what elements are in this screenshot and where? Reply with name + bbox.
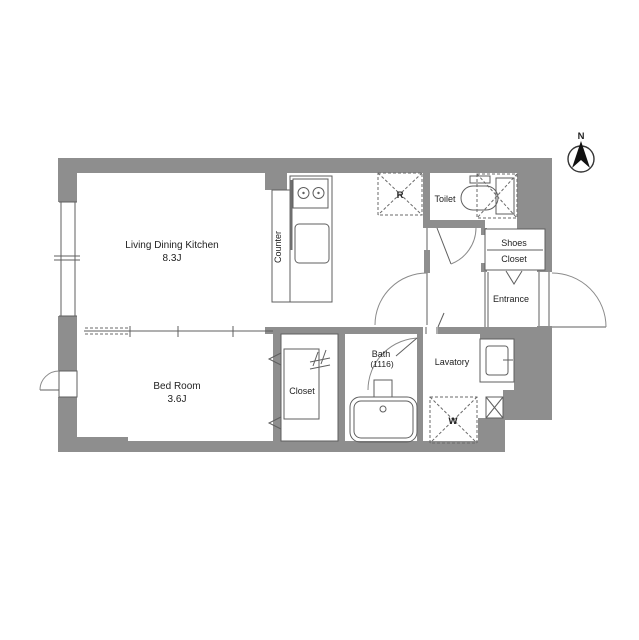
floor-plan-page: N Living Dining Kitchen 8.3J Bed Room 3.… (0, 0, 639, 640)
shoes-closet-label-1: Shoes (501, 238, 527, 248)
shoes-closet-label-2: Closet (501, 254, 527, 264)
bedroom-sliding-partition (84, 326, 273, 337)
lavatory-label: Lavatory (435, 357, 470, 367)
vanity-sink (480, 339, 514, 382)
ldk-size-label: 8.3J (163, 253, 182, 264)
counter-label: Counter (273, 231, 283, 263)
bedroom-size-label: 3.6J (168, 394, 187, 405)
refrigerator-label: R (397, 190, 404, 201)
washer-label: W (449, 416, 458, 427)
bath-label: Bath (372, 349, 391, 359)
bedroom-label: Bed Room (153, 381, 200, 392)
pipe-space (486, 397, 503, 418)
toilet-door (437, 228, 476, 264)
ldk-label: Living Dining Kitchen (125, 240, 218, 251)
stove (293, 179, 328, 208)
kitchen-hall-door (375, 273, 427, 325)
bath-size-label: (1116) (370, 359, 393, 369)
toilet-fixture (461, 174, 517, 218)
entrance-door (537, 272, 606, 327)
bedroom-side-door (40, 371, 77, 397)
entrance-label: Entrance (493, 294, 529, 304)
kitchen-sink (295, 224, 329, 263)
closet-label: Closet (289, 386, 315, 396)
north-label: N (578, 131, 585, 142)
ldk-window (54, 202, 80, 316)
north-arrow-icon (568, 141, 594, 172)
floor-plan-drawing: N Living Dining Kitchen 8.3J Bed Room 3.… (0, 0, 639, 640)
bathtub (350, 380, 417, 442)
entrance-step (485, 272, 488, 327)
toilet-label: Toilet (434, 194, 456, 204)
